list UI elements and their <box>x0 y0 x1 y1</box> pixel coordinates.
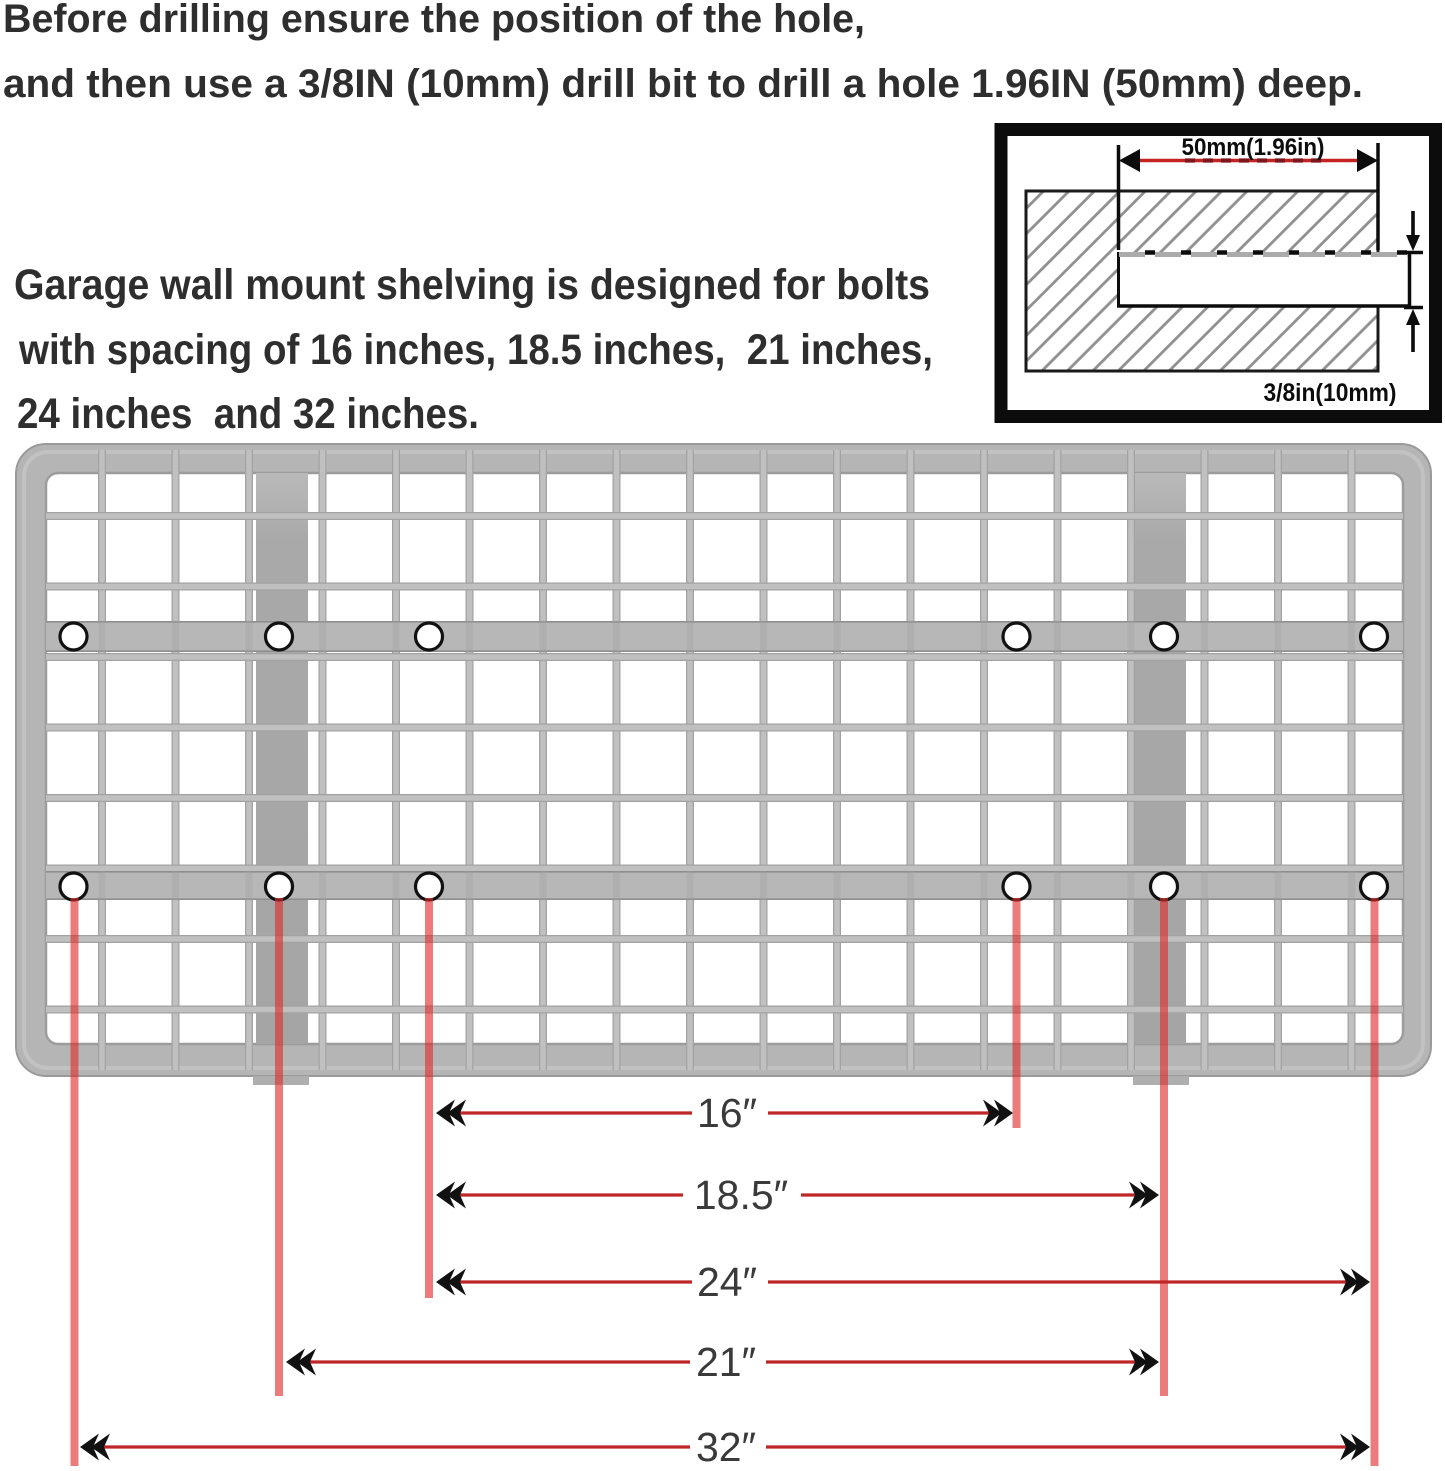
svg-text:24 inches and 32 inches.: 24 inches and 32 inches. <box>17 390 479 438</box>
svg-text:16″: 16″ <box>697 1090 757 1136</box>
svg-text:24″: 24″ <box>697 1259 757 1305</box>
svg-text:21″: 21″ <box>696 1339 756 1385</box>
svg-text:with spacing of 16 inches, 18.: with spacing of 16 inches, 18.5 inches, … <box>18 326 933 374</box>
svg-text:32″: 32″ <box>696 1424 756 1470</box>
svg-text:50mm(1.96in): 50mm(1.96in) <box>1182 134 1325 161</box>
svg-text:Before drilling ensure the pos: Before drilling ensure the position of t… <box>3 0 865 41</box>
svg-text:18.5″: 18.5″ <box>694 1172 788 1218</box>
svg-text:3/8in(10mm): 3/8in(10mm) <box>1264 379 1397 407</box>
svg-text:and then use a 3/8IN (10mm) dr: and then use a 3/8IN (10mm) drill bit to… <box>3 62 1363 106</box>
svg-text:Garage wall mount shelving is: Garage wall mount shelving is designed f… <box>14 261 930 309</box>
